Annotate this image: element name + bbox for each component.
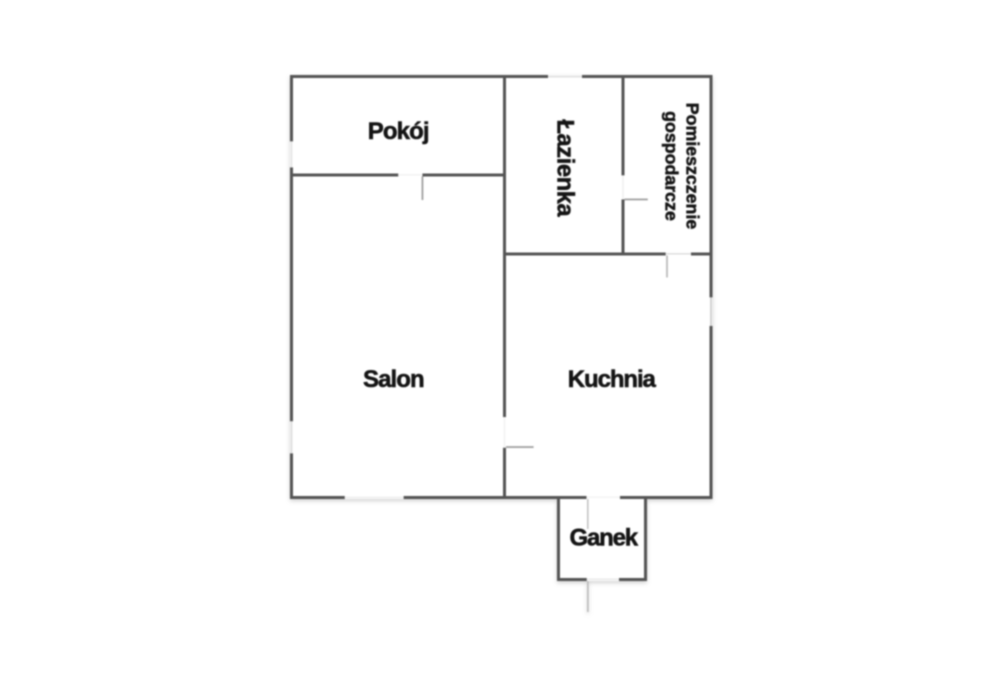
svg-text:Pomieszczenie: Pomieszczenie xyxy=(682,103,702,230)
svg-text:Ganek: Ganek xyxy=(570,524,639,551)
svg-text:Pokój: Pokój xyxy=(368,118,429,145)
svg-text:Kuchnia: Kuchnia xyxy=(568,366,657,393)
svg-text:Łazienka: Łazienka xyxy=(552,119,578,217)
svg-text:gospodarcze: gospodarcze xyxy=(661,111,681,221)
svg-text:Salon: Salon xyxy=(363,366,424,393)
